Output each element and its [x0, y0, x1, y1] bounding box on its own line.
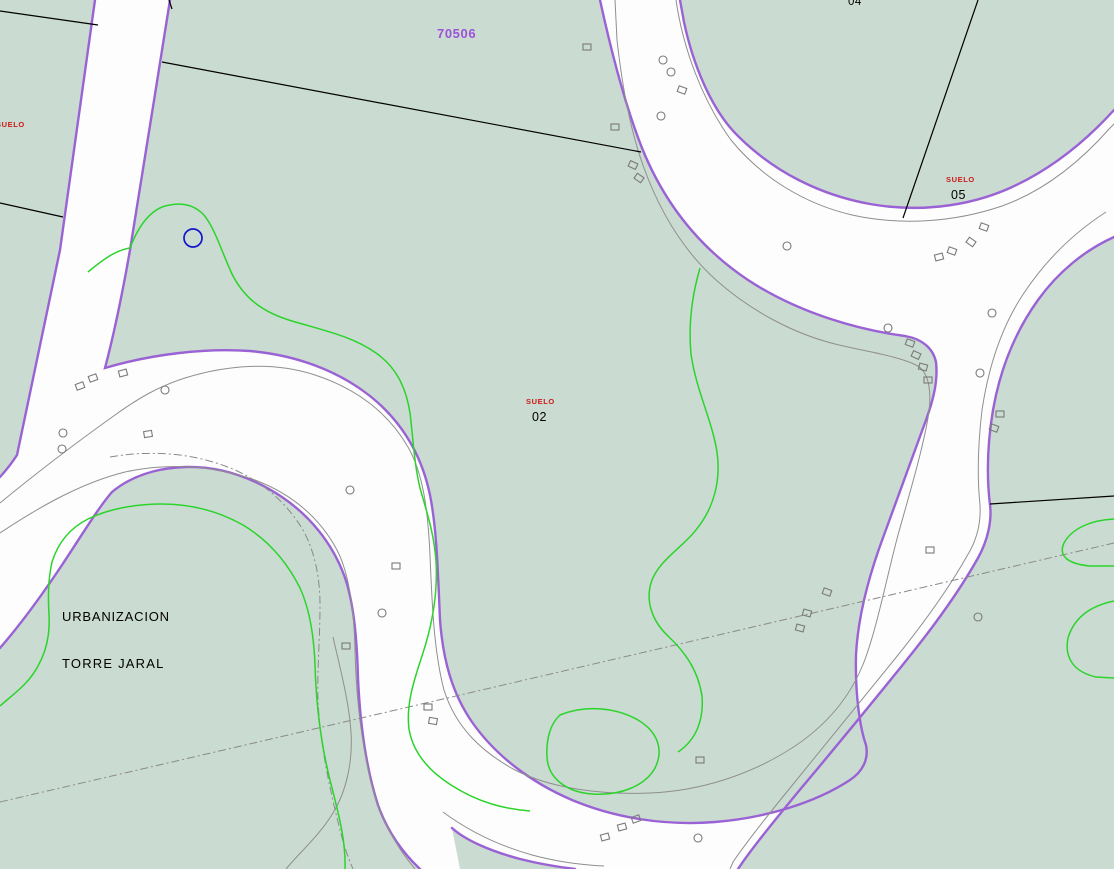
suelo-left-label: SUELO — [0, 121, 25, 129]
parcel-number-label: 70506 — [437, 27, 476, 40]
suelo-02-number-label: 02 — [532, 411, 547, 424]
suelo-05-title-label: SUELO — [946, 176, 975, 184]
map-drawing — [0, 0, 1114, 869]
cadastral-map-canvas[interactable]: 70506 SUELO SUELO 02 SUELO 05 04 URBANIZ… — [0, 0, 1114, 869]
urbanization-name-line1: URBANIZACION — [62, 610, 170, 623]
suelo-05-number-label: 05 — [951, 189, 966, 202]
suelo-02-title-label: SUELO — [526, 398, 555, 406]
urbanization-name-line2: TORRE JARAL — [62, 657, 165, 670]
parcel-04-label: 04 — [848, 0, 862, 9]
